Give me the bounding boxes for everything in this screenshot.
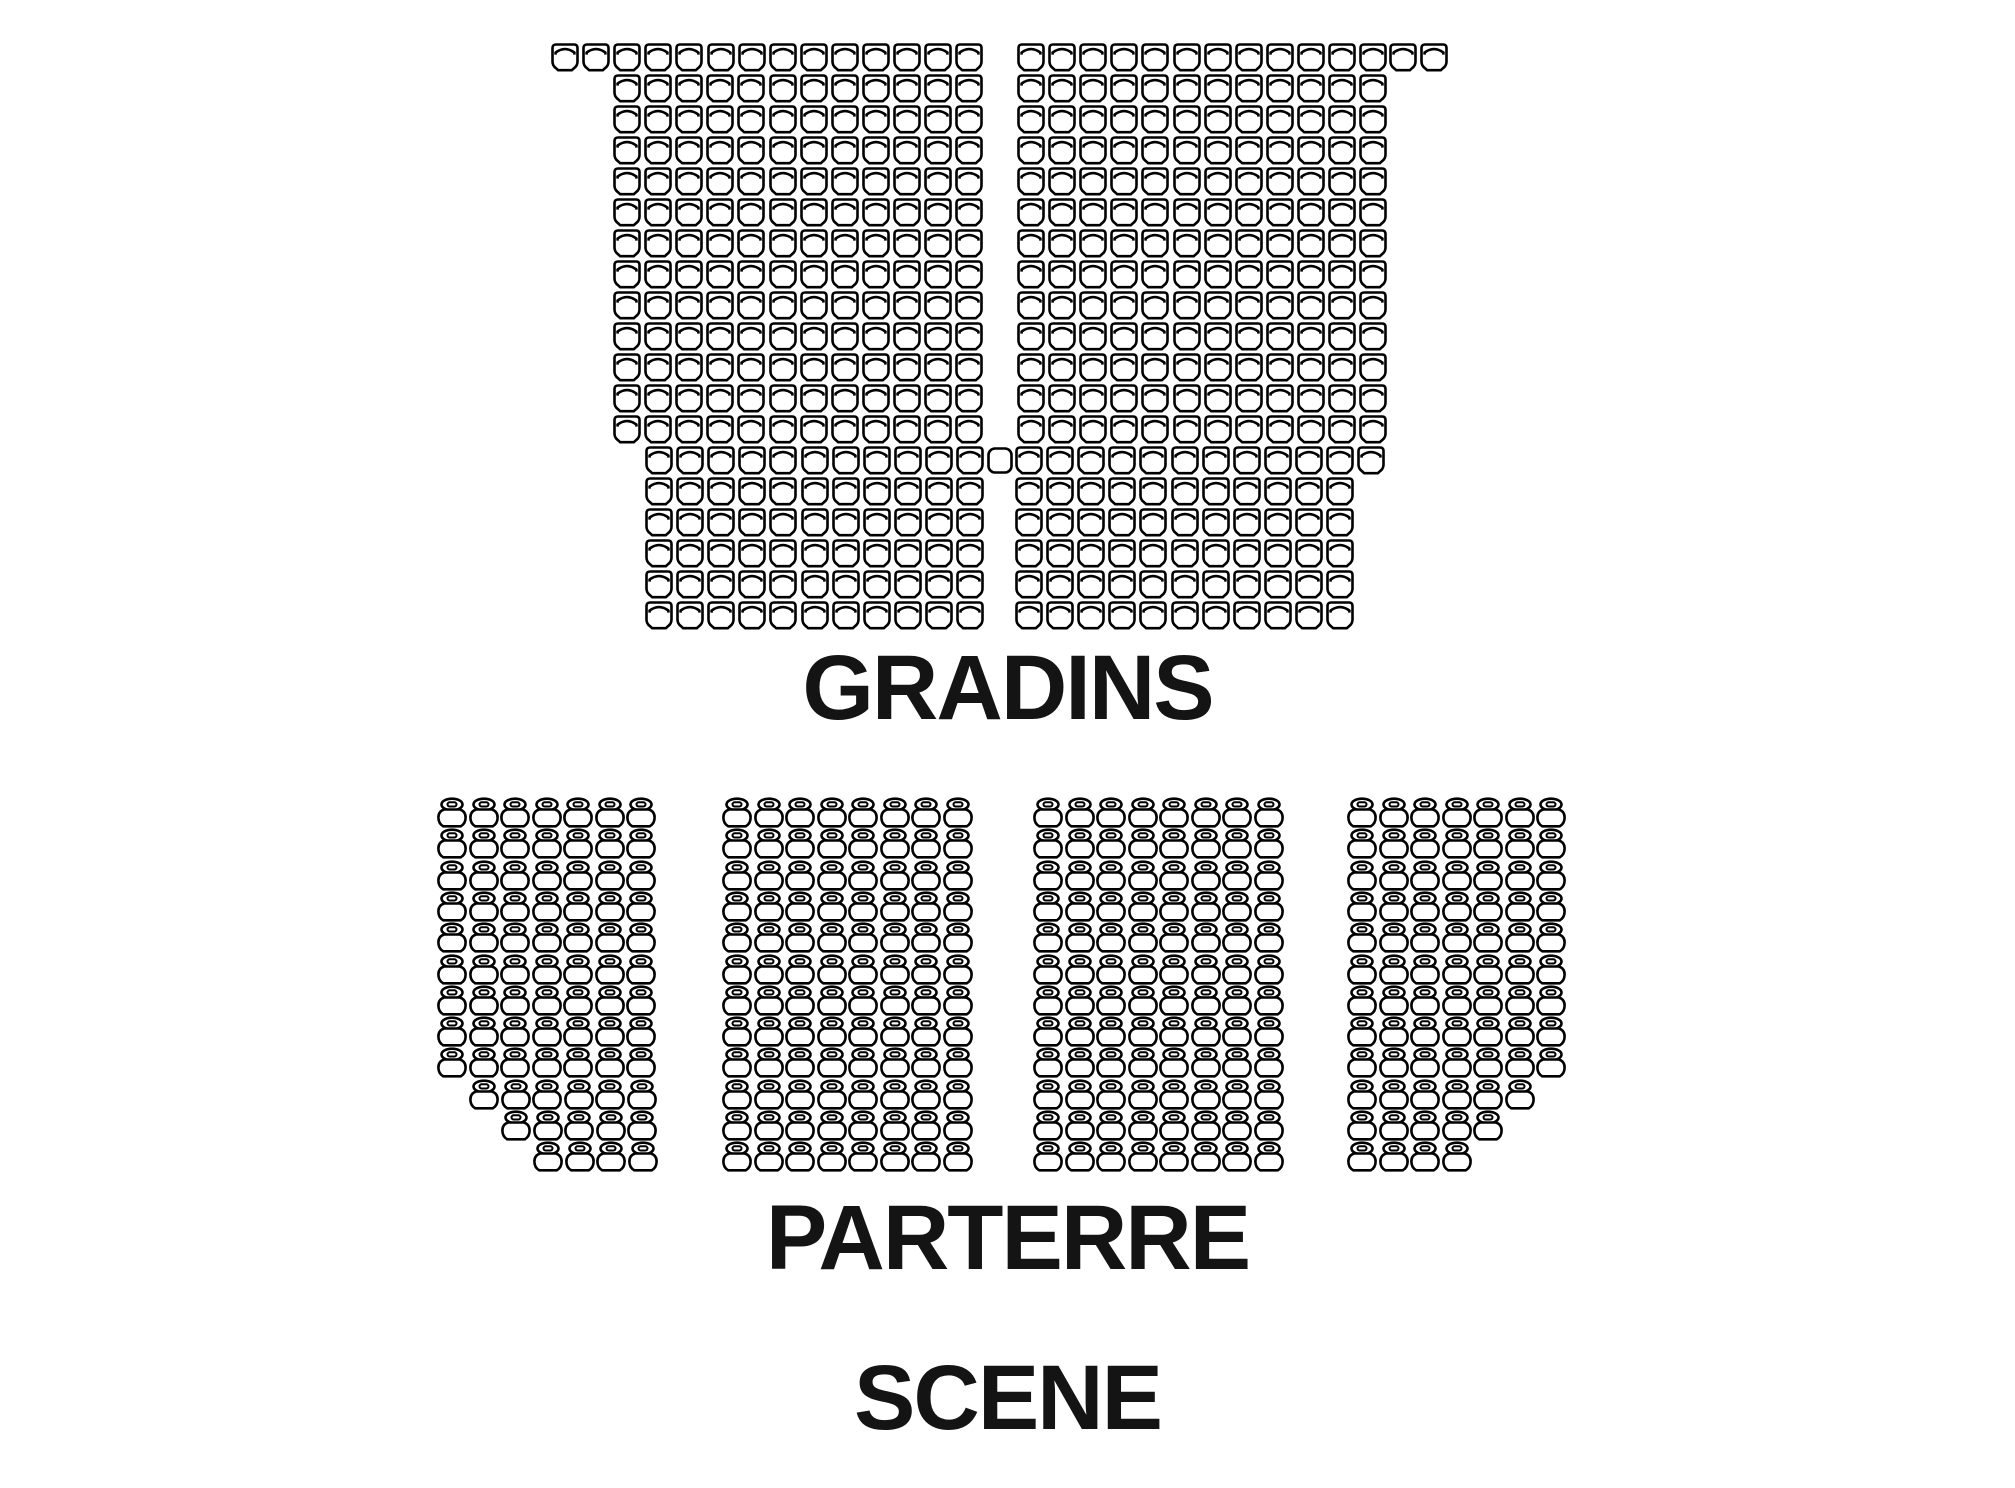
gradin-seat[interactable] <box>831 229 859 258</box>
gradin-seat[interactable] <box>706 260 734 289</box>
gradin-seat[interactable] <box>1017 353 1045 382</box>
gradin-seat[interactable] <box>800 74 828 103</box>
parterre-seat[interactable] <box>911 1110 941 1141</box>
gradin-seat[interactable] <box>644 384 672 413</box>
gradin-seat[interactable] <box>1235 322 1263 351</box>
gradin-seat[interactable] <box>925 508 953 537</box>
parterre-seat[interactable] <box>1159 922 1189 953</box>
gradin-seat[interactable] <box>862 291 890 320</box>
gradin-seat[interactable] <box>1139 446 1167 475</box>
parterre-seat[interactable] <box>1379 985 1409 1016</box>
gradin-seat[interactable] <box>1017 229 1045 258</box>
gradin-seat[interactable] <box>1015 601 1043 630</box>
gradin-seat[interactable] <box>1141 43 1169 72</box>
gradin-seat[interactable] <box>955 43 983 72</box>
gradin-seat[interactable] <box>800 384 828 413</box>
parterre-seat[interactable] <box>1033 891 1063 922</box>
gradin-seat[interactable] <box>894 601 922 630</box>
parterre-seat[interactable] <box>1442 828 1472 859</box>
gradin-seat[interactable] <box>1110 167 1138 196</box>
gradin-seat[interactable] <box>769 384 797 413</box>
gradin-seat[interactable] <box>925 570 953 599</box>
gradin-seat[interactable] <box>644 136 672 165</box>
parterre-seat[interactable] <box>785 922 815 953</box>
gradin-seat[interactable] <box>645 477 673 506</box>
gradin-seat[interactable] <box>924 74 952 103</box>
parterre-seat[interactable] <box>469 1016 499 1047</box>
gradin-seat[interactable] <box>1015 539 1043 568</box>
parterre-seat[interactable] <box>1065 1079 1095 1110</box>
gradin-seat[interactable] <box>1173 260 1201 289</box>
parterre-seat[interactable] <box>500 891 530 922</box>
gradin-seat[interactable] <box>1235 136 1263 165</box>
gradin-seat[interactable] <box>800 353 828 382</box>
parterre-seat[interactable] <box>722 1079 752 1110</box>
gradin-seat[interactable] <box>956 446 984 475</box>
gradin-seat[interactable] <box>737 105 765 134</box>
parterre-seat[interactable] <box>817 922 847 953</box>
gradin-seat[interactable] <box>613 384 641 413</box>
gradin-seat[interactable] <box>1079 105 1107 134</box>
gradin-seat[interactable] <box>1297 198 1325 227</box>
gradin-seat[interactable] <box>769 136 797 165</box>
gradin-seat[interactable] <box>862 384 890 413</box>
parterre-seat[interactable] <box>1347 1047 1377 1078</box>
gradin-seat[interactable] <box>1173 167 1201 196</box>
gradin-seat[interactable] <box>613 353 641 382</box>
gradin-seat[interactable] <box>1202 601 1230 630</box>
parterre-seat[interactable] <box>785 985 815 1016</box>
parterre-seat[interactable] <box>1065 860 1095 891</box>
gradin-seat[interactable] <box>955 291 983 320</box>
parterre-seat[interactable] <box>469 1079 499 1110</box>
gradin-seat[interactable] <box>1295 508 1323 537</box>
gradin-seat[interactable] <box>706 415 734 444</box>
gradin-seat[interactable] <box>831 322 859 351</box>
gradin-seat[interactable] <box>801 508 829 537</box>
gradin-seat[interactable] <box>801 570 829 599</box>
parterre-seat[interactable] <box>722 891 752 922</box>
aisle-seat[interactable] <box>986 446 1014 475</box>
gradin-seat[interactable] <box>893 260 921 289</box>
gradin-seat[interactable] <box>1077 601 1105 630</box>
gradin-seat[interactable] <box>893 105 921 134</box>
parterre-seat[interactable] <box>1442 954 1472 985</box>
gradin-seat[interactable] <box>1046 539 1074 568</box>
gradin-seat[interactable] <box>1326 601 1354 630</box>
gradin-seat[interactable] <box>924 353 952 382</box>
gradin-seat[interactable] <box>1173 322 1201 351</box>
parterre-seat[interactable] <box>533 1141 563 1172</box>
parterre-seat[interactable] <box>532 1047 562 1078</box>
parterre-seat[interactable] <box>1065 985 1095 1016</box>
gradin-seat[interactable] <box>737 167 765 196</box>
gradin-seat[interactable] <box>1297 260 1325 289</box>
gradin-seat[interactable] <box>924 136 952 165</box>
gradin-seat[interactable] <box>1110 260 1138 289</box>
gradin-seat[interactable] <box>1015 477 1043 506</box>
parterre-seat[interactable] <box>1191 1079 1221 1110</box>
parterre-seat[interactable] <box>563 954 593 985</box>
parterre-seat[interactable] <box>595 985 625 1016</box>
gradin-seat[interactable] <box>1359 74 1387 103</box>
parterre-seat[interactable] <box>848 860 878 891</box>
gradin-seat[interactable] <box>707 601 735 630</box>
parterre-seat[interactable] <box>1191 1110 1221 1141</box>
gradin-seat[interactable] <box>1359 384 1387 413</box>
parterre-seat[interactable] <box>943 1141 973 1172</box>
gradin-seat[interactable] <box>1110 136 1138 165</box>
gradin-seat[interactable] <box>1235 105 1263 134</box>
gradin-seat[interactable] <box>613 260 641 289</box>
parterre-seat[interactable] <box>1536 891 1566 922</box>
gradin-seat[interactable] <box>955 167 983 196</box>
gradin-seat[interactable] <box>1077 570 1105 599</box>
parterre-seat[interactable] <box>1379 860 1409 891</box>
gradin-seat[interactable] <box>955 229 983 258</box>
gradin-seat[interactable] <box>1359 136 1387 165</box>
gradin-seat[interactable] <box>737 229 765 258</box>
parterre-seat[interactable] <box>1536 860 1566 891</box>
gradin-seat[interactable] <box>1204 229 1232 258</box>
gradin-seat[interactable] <box>769 415 797 444</box>
parterre-seat[interactable] <box>1222 985 1252 1016</box>
gradin-seat[interactable] <box>1295 601 1323 630</box>
gradin-seat[interactable] <box>1204 198 1232 227</box>
parterre-seat[interactable] <box>911 1141 941 1172</box>
parterre-seat[interactable] <box>880 797 910 828</box>
parterre-seat[interactable] <box>1505 797 1535 828</box>
gradin-seat[interactable] <box>1266 291 1294 320</box>
parterre-seat[interactable] <box>532 985 562 1016</box>
gradin-seat[interactable] <box>1046 508 1074 537</box>
parterre-seat[interactable] <box>532 860 562 891</box>
parterre-seat[interactable] <box>1410 1141 1440 1172</box>
parterre-seat[interactable] <box>1096 891 1126 922</box>
parterre-seat[interactable] <box>500 797 530 828</box>
gradin-seat[interactable] <box>1297 167 1325 196</box>
gradin-seat[interactable] <box>1108 508 1136 537</box>
gradin-seat[interactable] <box>862 260 890 289</box>
parterre-seat[interactable] <box>754 985 784 1016</box>
gradin-seat[interactable] <box>1110 198 1138 227</box>
parterre-seat[interactable] <box>1222 1016 1252 1047</box>
parterre-seat[interactable] <box>1128 1079 1158 1110</box>
gradin-seat[interactable] <box>1110 74 1138 103</box>
parterre-seat[interactable] <box>469 954 499 985</box>
parterre-seat[interactable] <box>500 1016 530 1047</box>
gradin-seat[interactable] <box>644 229 672 258</box>
parterre-seat[interactable] <box>754 1016 784 1047</box>
gradin-seat[interactable] <box>644 415 672 444</box>
gradin-seat[interactable] <box>769 105 797 134</box>
parterre-seat[interactable] <box>1442 1110 1472 1141</box>
gradin-seat[interactable] <box>737 322 765 351</box>
parterre-seat[interactable] <box>1536 985 1566 1016</box>
gradin-seat[interactable] <box>1141 322 1169 351</box>
parterre-seat[interactable] <box>1254 922 1284 953</box>
parterre-seat[interactable] <box>943 891 973 922</box>
gradin-seat[interactable] <box>613 198 641 227</box>
gradin-seat[interactable] <box>1015 446 1043 475</box>
parterre-seat[interactable] <box>563 860 593 891</box>
parterre-seat[interactable] <box>595 797 625 828</box>
parterre-seat[interactable] <box>1033 922 1063 953</box>
parterre-seat[interactable] <box>880 954 910 985</box>
parterre-seat[interactable] <box>880 1079 910 1110</box>
gradin-seat[interactable] <box>706 384 734 413</box>
gradin-seat[interactable] <box>644 43 672 72</box>
parterre-seat[interactable] <box>1065 1016 1095 1047</box>
gradin-seat[interactable] <box>801 539 829 568</box>
gradin-seat[interactable] <box>956 601 984 630</box>
parterre-seat[interactable] <box>1191 954 1221 985</box>
gradin-seat[interactable] <box>1266 384 1294 413</box>
gradin-seat[interactable] <box>1108 477 1136 506</box>
gradin-seat[interactable] <box>1204 415 1232 444</box>
parterre-seat[interactable] <box>1442 797 1472 828</box>
gradin-seat[interactable] <box>1110 415 1138 444</box>
gradin-seat[interactable] <box>1017 291 1045 320</box>
gradin-seat[interactable] <box>801 477 829 506</box>
gradin-seat[interactable] <box>1171 539 1199 568</box>
gradin-seat[interactable] <box>1048 167 1076 196</box>
parterre-seat[interactable] <box>722 1141 752 1172</box>
parterre-seat[interactable] <box>437 891 467 922</box>
gradin-seat[interactable] <box>862 353 890 382</box>
gradin-seat[interactable] <box>706 74 734 103</box>
gradin-seat[interactable] <box>832 446 860 475</box>
gradin-seat[interactable] <box>863 539 891 568</box>
parterre-seat[interactable] <box>943 922 973 953</box>
gradin-seat[interactable] <box>1204 322 1232 351</box>
parterre-seat[interactable] <box>943 828 973 859</box>
gradin-seat[interactable] <box>675 198 703 227</box>
gradin-seat[interactable] <box>1046 477 1074 506</box>
parterre-seat[interactable] <box>1191 797 1221 828</box>
gradin-seat[interactable] <box>1328 353 1356 382</box>
parterre-seat[interactable] <box>1096 860 1126 891</box>
gradin-seat[interactable] <box>955 74 983 103</box>
gradin-seat[interactable] <box>1141 291 1169 320</box>
parterre-seat[interactable] <box>501 1110 531 1141</box>
gradin-seat[interactable] <box>1110 229 1138 258</box>
gradin-seat[interactable] <box>645 601 673 630</box>
parterre-seat[interactable] <box>1347 828 1377 859</box>
gradin-seat[interactable] <box>613 415 641 444</box>
gradin-seat[interactable] <box>769 43 797 72</box>
parterre-seat[interactable] <box>626 1016 656 1047</box>
gradin-seat[interactable] <box>831 198 859 227</box>
parterre-seat[interactable] <box>1473 1079 1503 1110</box>
parterre-seat[interactable] <box>880 1016 910 1047</box>
gradin-seat[interactable] <box>1326 539 1354 568</box>
parterre-seat[interactable] <box>469 922 499 953</box>
parterre-seat[interactable] <box>1033 954 1063 985</box>
parterre-seat[interactable] <box>596 1141 626 1172</box>
gradin-seat[interactable] <box>1328 291 1356 320</box>
gradin-seat[interactable] <box>1079 43 1107 72</box>
parterre-seat[interactable] <box>1128 1016 1158 1047</box>
gradin-seat[interactable] <box>924 384 952 413</box>
parterre-seat[interactable] <box>785 1047 815 1078</box>
gradin-seat[interactable] <box>1297 291 1325 320</box>
parterre-seat[interactable] <box>817 1079 847 1110</box>
gradin-seat[interactable] <box>645 508 673 537</box>
parterre-seat[interactable] <box>1473 1016 1503 1047</box>
parterre-seat[interactable] <box>1410 828 1440 859</box>
gradin-seat[interactable] <box>644 198 672 227</box>
parterre-seat[interactable] <box>1222 954 1252 985</box>
parterre-seat[interactable] <box>880 985 910 1016</box>
parterre-seat[interactable] <box>1379 954 1409 985</box>
gradin-seat[interactable] <box>1202 570 1230 599</box>
gradin-seat[interactable] <box>800 198 828 227</box>
parterre-seat[interactable] <box>1191 860 1221 891</box>
parterre-seat[interactable] <box>627 1110 657 1141</box>
parterre-seat[interactable] <box>1410 1079 1440 1110</box>
gradin-seat[interactable] <box>1017 322 1045 351</box>
parterre-seat[interactable] <box>722 1016 752 1047</box>
parterre-seat[interactable] <box>1254 1079 1284 1110</box>
parterre-seat[interactable] <box>1159 1079 1189 1110</box>
parterre-seat[interactable] <box>817 1110 847 1141</box>
gradin-seat[interactable] <box>1079 229 1107 258</box>
gradin-seat[interactable] <box>1139 477 1167 506</box>
gradin-seat[interactable] <box>613 167 641 196</box>
gradin-seat[interactable] <box>1297 322 1325 351</box>
gradin-seat[interactable] <box>675 322 703 351</box>
gradin-seat[interactable] <box>738 477 766 506</box>
parterre-seat[interactable] <box>1505 1047 1535 1078</box>
parterre-seat[interactable] <box>1159 891 1189 922</box>
gradin-seat[interactable] <box>955 415 983 444</box>
gradin-seat[interactable] <box>1108 570 1136 599</box>
gradin-seat[interactable] <box>1141 74 1169 103</box>
gradin-seat[interactable] <box>1297 415 1325 444</box>
parterre-seat[interactable] <box>943 985 973 1016</box>
gradin-seat[interactable] <box>955 198 983 227</box>
parterre-seat[interactable] <box>1473 954 1503 985</box>
parterre-seat[interactable] <box>1254 860 1284 891</box>
gradin-seat[interactable] <box>707 446 735 475</box>
parterre-seat[interactable] <box>1159 1141 1189 1172</box>
parterre-seat[interactable] <box>911 1016 941 1047</box>
gradin-seat[interactable] <box>831 136 859 165</box>
gradin-seat[interactable] <box>1079 198 1107 227</box>
parterre-seat[interactable] <box>880 1141 910 1172</box>
gradin-seat[interactable] <box>1108 539 1136 568</box>
parterre-seat[interactable] <box>754 1047 784 1078</box>
gradin-seat[interactable] <box>863 446 891 475</box>
parterre-seat[interactable] <box>1191 1141 1221 1172</box>
gradin-seat[interactable] <box>675 384 703 413</box>
gradin-seat[interactable] <box>1173 384 1201 413</box>
parterre-seat[interactable] <box>1379 1110 1409 1141</box>
gradin-seat[interactable] <box>955 353 983 382</box>
parterre-seat[interactable] <box>1536 954 1566 985</box>
gradin-seat[interactable] <box>956 539 984 568</box>
gradin-seat[interactable] <box>1204 43 1232 72</box>
parterre-seat[interactable] <box>1128 828 1158 859</box>
gradin-seat[interactable] <box>1110 322 1138 351</box>
gradin-seat[interactable] <box>924 291 952 320</box>
gradin-seat[interactable] <box>1048 322 1076 351</box>
parterre-seat[interactable] <box>1505 954 1535 985</box>
parterre-seat[interactable] <box>532 828 562 859</box>
gradin-seat[interactable] <box>862 322 890 351</box>
parterre-seat[interactable] <box>848 1047 878 1078</box>
gradin-seat[interactable] <box>645 446 673 475</box>
gradin-seat[interactable] <box>769 508 797 537</box>
gradin-seat[interactable] <box>613 105 641 134</box>
parterre-seat[interactable] <box>1347 954 1377 985</box>
gradin-seat[interactable] <box>1171 477 1199 506</box>
parterre-seat[interactable] <box>1347 1110 1377 1141</box>
gradin-seat[interactable] <box>894 508 922 537</box>
parterre-seat[interactable] <box>1222 828 1252 859</box>
parterre-seat[interactable] <box>565 1141 595 1172</box>
parterre-seat[interactable] <box>1505 828 1535 859</box>
gradin-seat[interactable] <box>1017 198 1045 227</box>
gradin-seat[interactable] <box>1295 446 1323 475</box>
gradin-seat[interactable] <box>1048 260 1076 289</box>
parterre-seat[interactable] <box>1159 860 1189 891</box>
parterre-seat[interactable] <box>1033 1141 1063 1172</box>
parterre-seat[interactable] <box>1442 1047 1472 1078</box>
parterre-seat[interactable] <box>628 1141 658 1172</box>
parterre-seat[interactable] <box>469 985 499 1016</box>
gradin-seat[interactable] <box>893 167 921 196</box>
parterre-seat[interactable] <box>1033 860 1063 891</box>
gradin-seat[interactable] <box>924 105 952 134</box>
gradin-seat[interactable] <box>769 353 797 382</box>
gradin-seat[interactable] <box>1141 198 1169 227</box>
parterre-seat[interactable] <box>1128 797 1158 828</box>
parterre-seat[interactable] <box>532 954 562 985</box>
parterre-seat[interactable] <box>1096 1141 1126 1172</box>
gradin-seat[interactable] <box>1235 260 1263 289</box>
gradin-seat[interactable] <box>1141 353 1169 382</box>
parterre-seat[interactable] <box>817 860 847 891</box>
gradin-seat[interactable] <box>831 260 859 289</box>
parterre-seat[interactable] <box>754 828 784 859</box>
gradin-seat[interactable] <box>675 43 703 72</box>
parterre-seat[interactable] <box>1473 797 1503 828</box>
parterre-seat[interactable] <box>437 922 467 953</box>
gradin-seat[interactable] <box>1204 353 1232 382</box>
gradin-seat[interactable] <box>1077 539 1105 568</box>
gradin-seat[interactable] <box>613 229 641 258</box>
gradin-seat[interactable] <box>1171 570 1199 599</box>
gradin-seat[interactable] <box>863 570 891 599</box>
gradin-seat[interactable] <box>737 384 765 413</box>
parterre-seat[interactable] <box>754 891 784 922</box>
parterre-seat[interactable] <box>1536 828 1566 859</box>
parterre-seat[interactable] <box>1128 1110 1158 1141</box>
gradin-seat[interactable] <box>893 322 921 351</box>
parterre-seat[interactable] <box>563 891 593 922</box>
gradin-seat[interactable] <box>738 601 766 630</box>
gradin-seat[interactable] <box>707 477 735 506</box>
gradin-seat[interactable] <box>1359 43 1387 72</box>
parterre-seat[interactable] <box>943 1079 973 1110</box>
parterre-seat[interactable] <box>533 1110 563 1141</box>
gradin-seat[interactable] <box>893 43 921 72</box>
parterre-seat[interactable] <box>785 954 815 985</box>
gradin-seat[interactable] <box>1079 167 1107 196</box>
parterre-seat[interactable] <box>754 797 784 828</box>
